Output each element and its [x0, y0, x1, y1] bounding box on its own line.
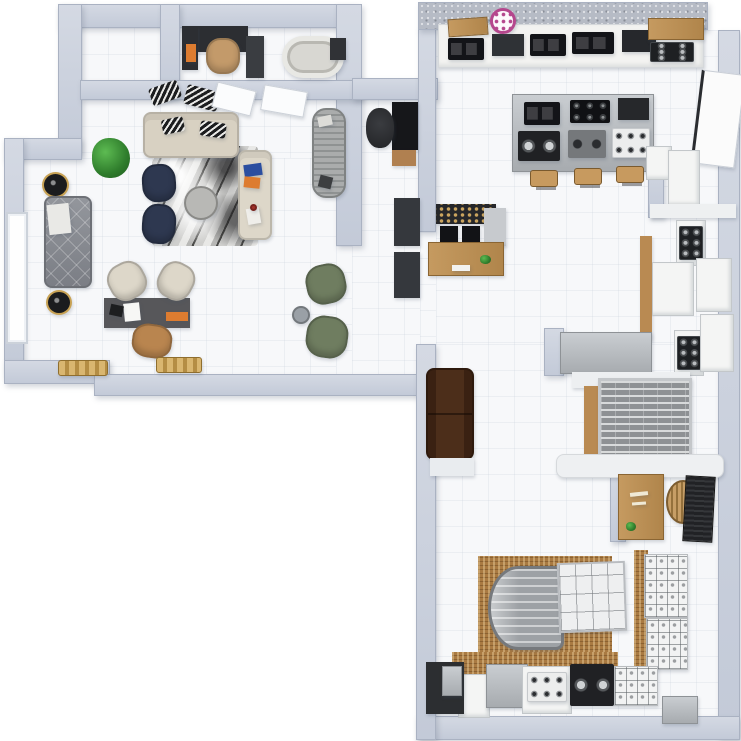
- dark-dial-appliance: [570, 664, 614, 706]
- range-1-burners: [679, 226, 703, 260]
- floorplan-canvas: [0, 0, 741, 741]
- cooktop-c: [530, 34, 566, 56]
- stool-3: [616, 166, 644, 183]
- sofa-gray-throw: [46, 203, 71, 235]
- range-3-burners: [527, 672, 567, 702]
- bath-cabinet: [330, 38, 346, 60]
- hall-cabinet-1: [394, 198, 420, 246]
- reception-desk-wood: [618, 474, 664, 540]
- coffee-scale: [452, 265, 470, 271]
- range-2-burners: [677, 336, 701, 370]
- left-window: [6, 212, 28, 344]
- cooktop-a: [448, 38, 484, 60]
- office-chair-tan: [206, 38, 240, 74]
- wire-rack: [598, 378, 692, 462]
- corridor-fridge-b: [668, 150, 700, 206]
- gold-bench-2: [156, 357, 202, 373]
- sink-basin: [442, 666, 462, 696]
- wall-top-left: [58, 4, 354, 28]
- product-shelf-1: [644, 554, 688, 618]
- island-hob-5: [568, 130, 606, 158]
- coffee-plant: [480, 255, 491, 264]
- sofa-brown-ledge: [430, 458, 474, 476]
- armchair-navy-1: [141, 163, 178, 203]
- wood-shelf-top: [648, 18, 704, 40]
- bath-vanity: [246, 36, 264, 78]
- rack-wood-strip: [584, 386, 598, 460]
- office-books-orange: [186, 44, 196, 62]
- steel-box-small: [662, 696, 698, 724]
- cooktop-d: [572, 32, 614, 54]
- display-box: [614, 666, 658, 706]
- bench-item-orange: [243, 176, 260, 189]
- desk-laptop: [109, 304, 124, 317]
- display-case-deli: [557, 561, 627, 633]
- gold-bench-1: [58, 360, 108, 376]
- floor-sculpture: [292, 306, 310, 324]
- corridor-shelf: [650, 204, 736, 218]
- chest-freezer-gray: [560, 332, 652, 374]
- coffee-table-round: [184, 186, 218, 220]
- island-hob-1: [524, 102, 560, 125]
- display-case-curved: [488, 566, 564, 650]
- desk-plant-small: [626, 522, 636, 531]
- product-shelf-2: [646, 618, 688, 670]
- hall-drawers: [392, 150, 416, 166]
- hall-cabinet-2: [394, 252, 420, 298]
- desk-paper: [123, 302, 141, 322]
- island-hob-2: [570, 100, 610, 123]
- cutting-board-wood: [447, 17, 488, 38]
- floor-closet: [82, 28, 160, 80]
- gas-cooktop-top: [650, 42, 694, 62]
- sofa-brown: [426, 368, 474, 460]
- corridor-fridge-c: [696, 258, 732, 312]
- stool-2: [574, 168, 602, 185]
- wall-left-upper: [58, 4, 82, 154]
- island-hob-4: [518, 131, 560, 161]
- island-hob-3: [618, 98, 649, 120]
- corridor-cabinet: [652, 262, 694, 316]
- brand-watermark-icon: [490, 8, 516, 34]
- hall-office-chair: [366, 108, 394, 148]
- bench-item-blue: [243, 163, 262, 177]
- stool-1: [530, 170, 558, 187]
- hall-desk: [392, 102, 418, 150]
- potted-plant: [92, 138, 130, 178]
- side-table-black-2: [46, 290, 72, 315]
- corner-fridge: [700, 314, 734, 372]
- coffee-counter-return: [484, 208, 506, 246]
- island-hob-6: [612, 128, 650, 158]
- cooktop-b: [492, 34, 524, 56]
- side-table-black-1: [42, 172, 69, 198]
- dark-blinds: [682, 475, 715, 542]
- wall-living-bottom: [94, 374, 436, 396]
- bench-bottle-cap: [250, 204, 257, 211]
- desk-logo-strip: [166, 312, 188, 321]
- wall-kitchen-left: [418, 28, 436, 232]
- corridor-wood-strip: [640, 236, 652, 340]
